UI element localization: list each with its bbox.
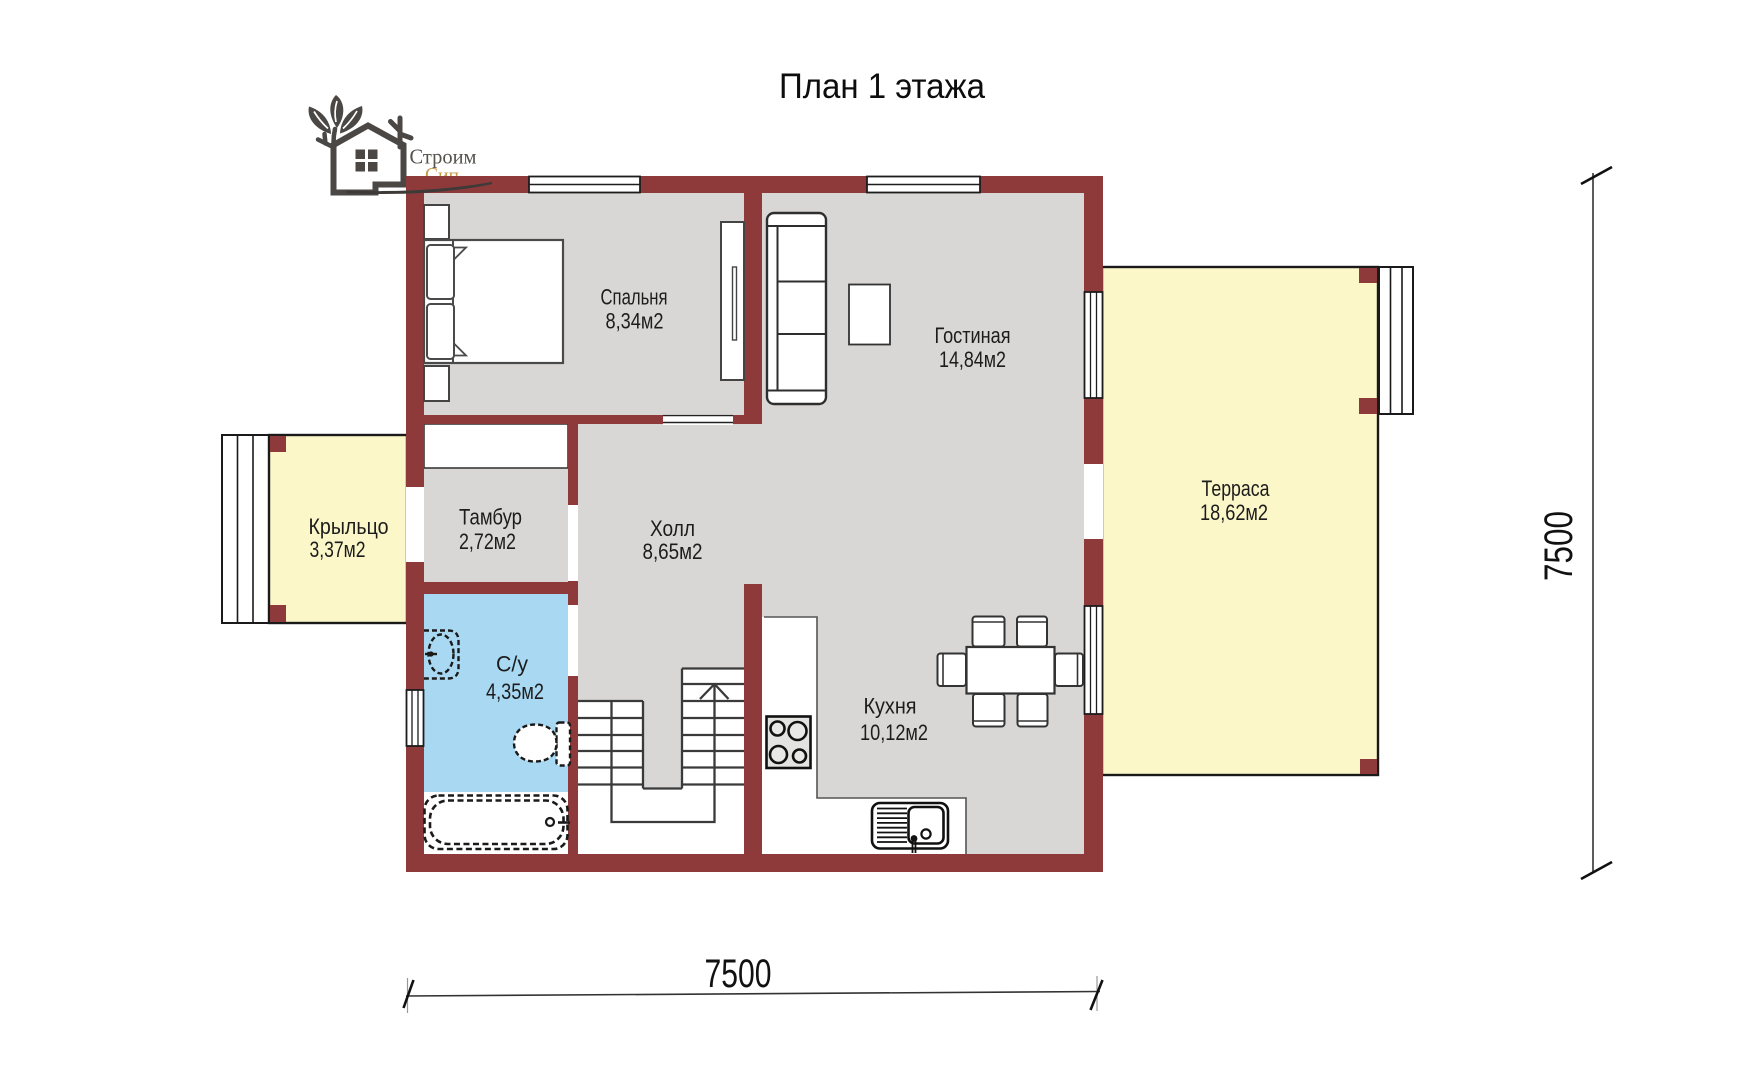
- svg-text:14,84м2: 14,84м2: [939, 347, 1006, 372]
- svg-text:Холл: Холл: [650, 516, 695, 541]
- svg-text:Тамбур: Тамбур: [459, 505, 522, 530]
- svg-text:8,34м2: 8,34м2: [606, 309, 664, 334]
- svg-text:Крыльцо: Крыльцо: [309, 514, 389, 539]
- svg-text:Гостиная: Гостиная: [935, 323, 1011, 348]
- svg-text:18,62м2: 18,62м2: [1200, 500, 1268, 525]
- svg-text:План 1 этажа: План 1 этажа: [779, 67, 986, 106]
- svg-text:Терраса: Терраса: [1202, 476, 1271, 501]
- svg-text:Кухня: Кухня: [864, 694, 917, 719]
- svg-text:4,35м2: 4,35м2: [486, 679, 544, 704]
- svg-text:2,72м2: 2,72м2: [459, 529, 516, 554]
- svg-text:3,37м2: 3,37м2: [310, 537, 366, 562]
- svg-text:10,12м2: 10,12м2: [860, 720, 928, 745]
- svg-text:С/у: С/у: [496, 652, 528, 677]
- svg-text:Спальня: Спальня: [601, 285, 668, 310]
- svg-text:8,65м2: 8,65м2: [643, 539, 703, 564]
- svg-text:7500: 7500: [705, 952, 772, 996]
- svg-text:7500: 7500: [1537, 511, 1581, 581]
